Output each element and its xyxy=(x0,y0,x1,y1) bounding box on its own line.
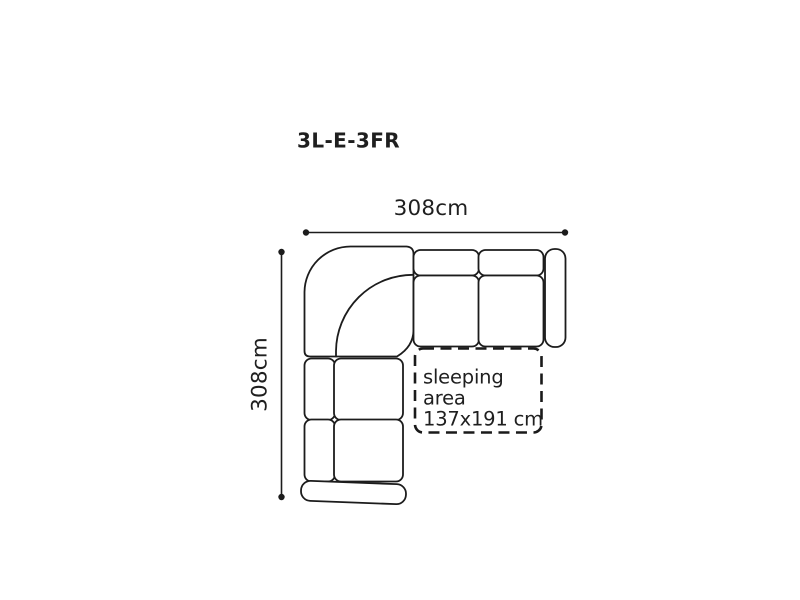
bottom-armrest xyxy=(301,480,407,504)
top-backrest-cushion-1 xyxy=(414,250,480,276)
height-dimension: 308cm xyxy=(248,249,285,500)
height-dimension-start-dot xyxy=(278,249,284,255)
width-dimension: 308cm xyxy=(303,196,568,236)
corner-module xyxy=(305,247,414,357)
right-armrest xyxy=(545,249,566,347)
width-dimension-start-dot xyxy=(303,229,309,235)
sleeping-area-text-line3: 137x191 cm xyxy=(423,408,543,431)
sleeping-area-text-line2: area xyxy=(423,387,466,410)
top-seat-cushion-2 xyxy=(479,276,544,347)
height-dimension-label: 308cm xyxy=(248,337,273,412)
diagram-svg: 3L-E-3FR 308cm 308cm xyxy=(0,0,800,600)
sleeping-area: sleeping area 137x191 cm xyxy=(415,349,543,433)
sleeping-area-text-line1: sleeping xyxy=(423,366,504,389)
width-dimension-label: 308cm xyxy=(394,196,469,221)
height-dimension-end-dot xyxy=(278,494,284,500)
left-seat-cushion-1 xyxy=(334,359,403,421)
left-seat-cushion-2 xyxy=(334,420,403,482)
left-backrest-cushion-1 xyxy=(305,359,336,421)
top-backrest-cushion-2 xyxy=(479,250,544,276)
product-code-title: 3L-E-3FR xyxy=(297,129,400,153)
top-seat-cushion-1 xyxy=(414,276,480,347)
width-dimension-end-dot xyxy=(562,229,568,235)
sofa-dimension-diagram: 3L-E-3FR 308cm 308cm xyxy=(0,0,800,600)
left-backrest-cushion-2 xyxy=(305,420,336,482)
